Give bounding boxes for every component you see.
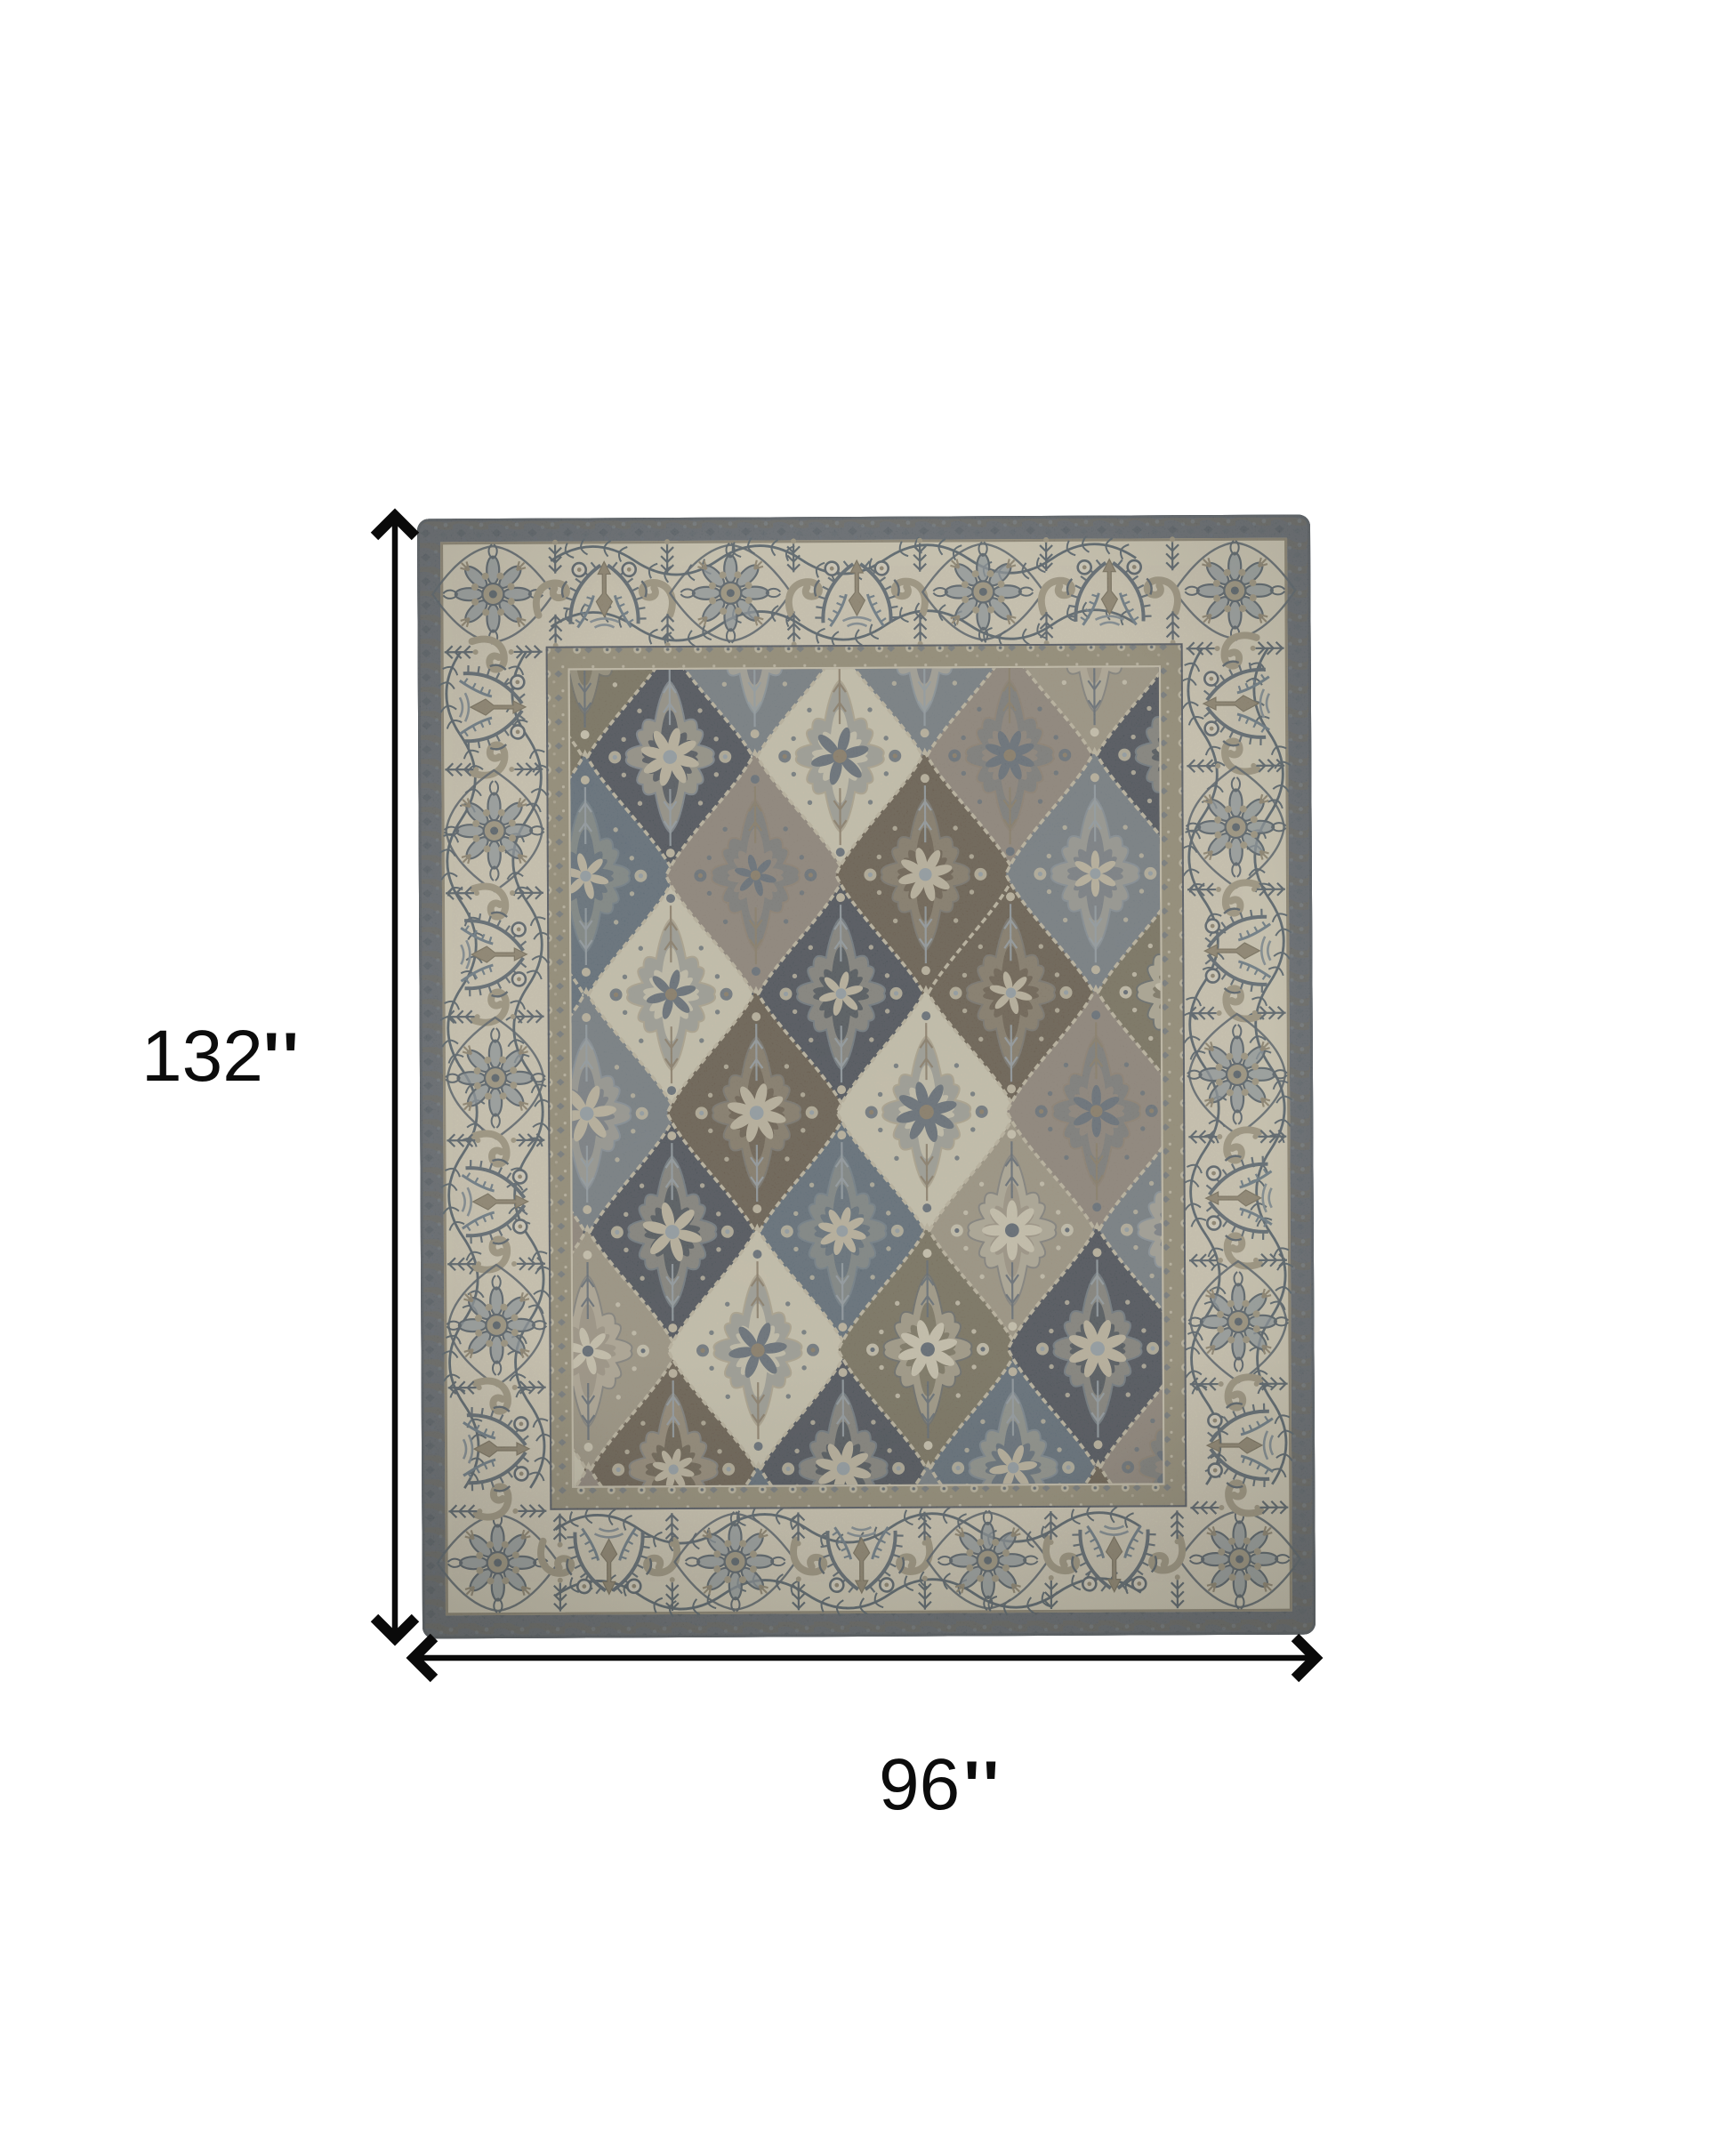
svg-text:96'': 96'': [879, 1744, 1002, 1825]
svg-text:132'': 132'': [141, 1016, 302, 1097]
